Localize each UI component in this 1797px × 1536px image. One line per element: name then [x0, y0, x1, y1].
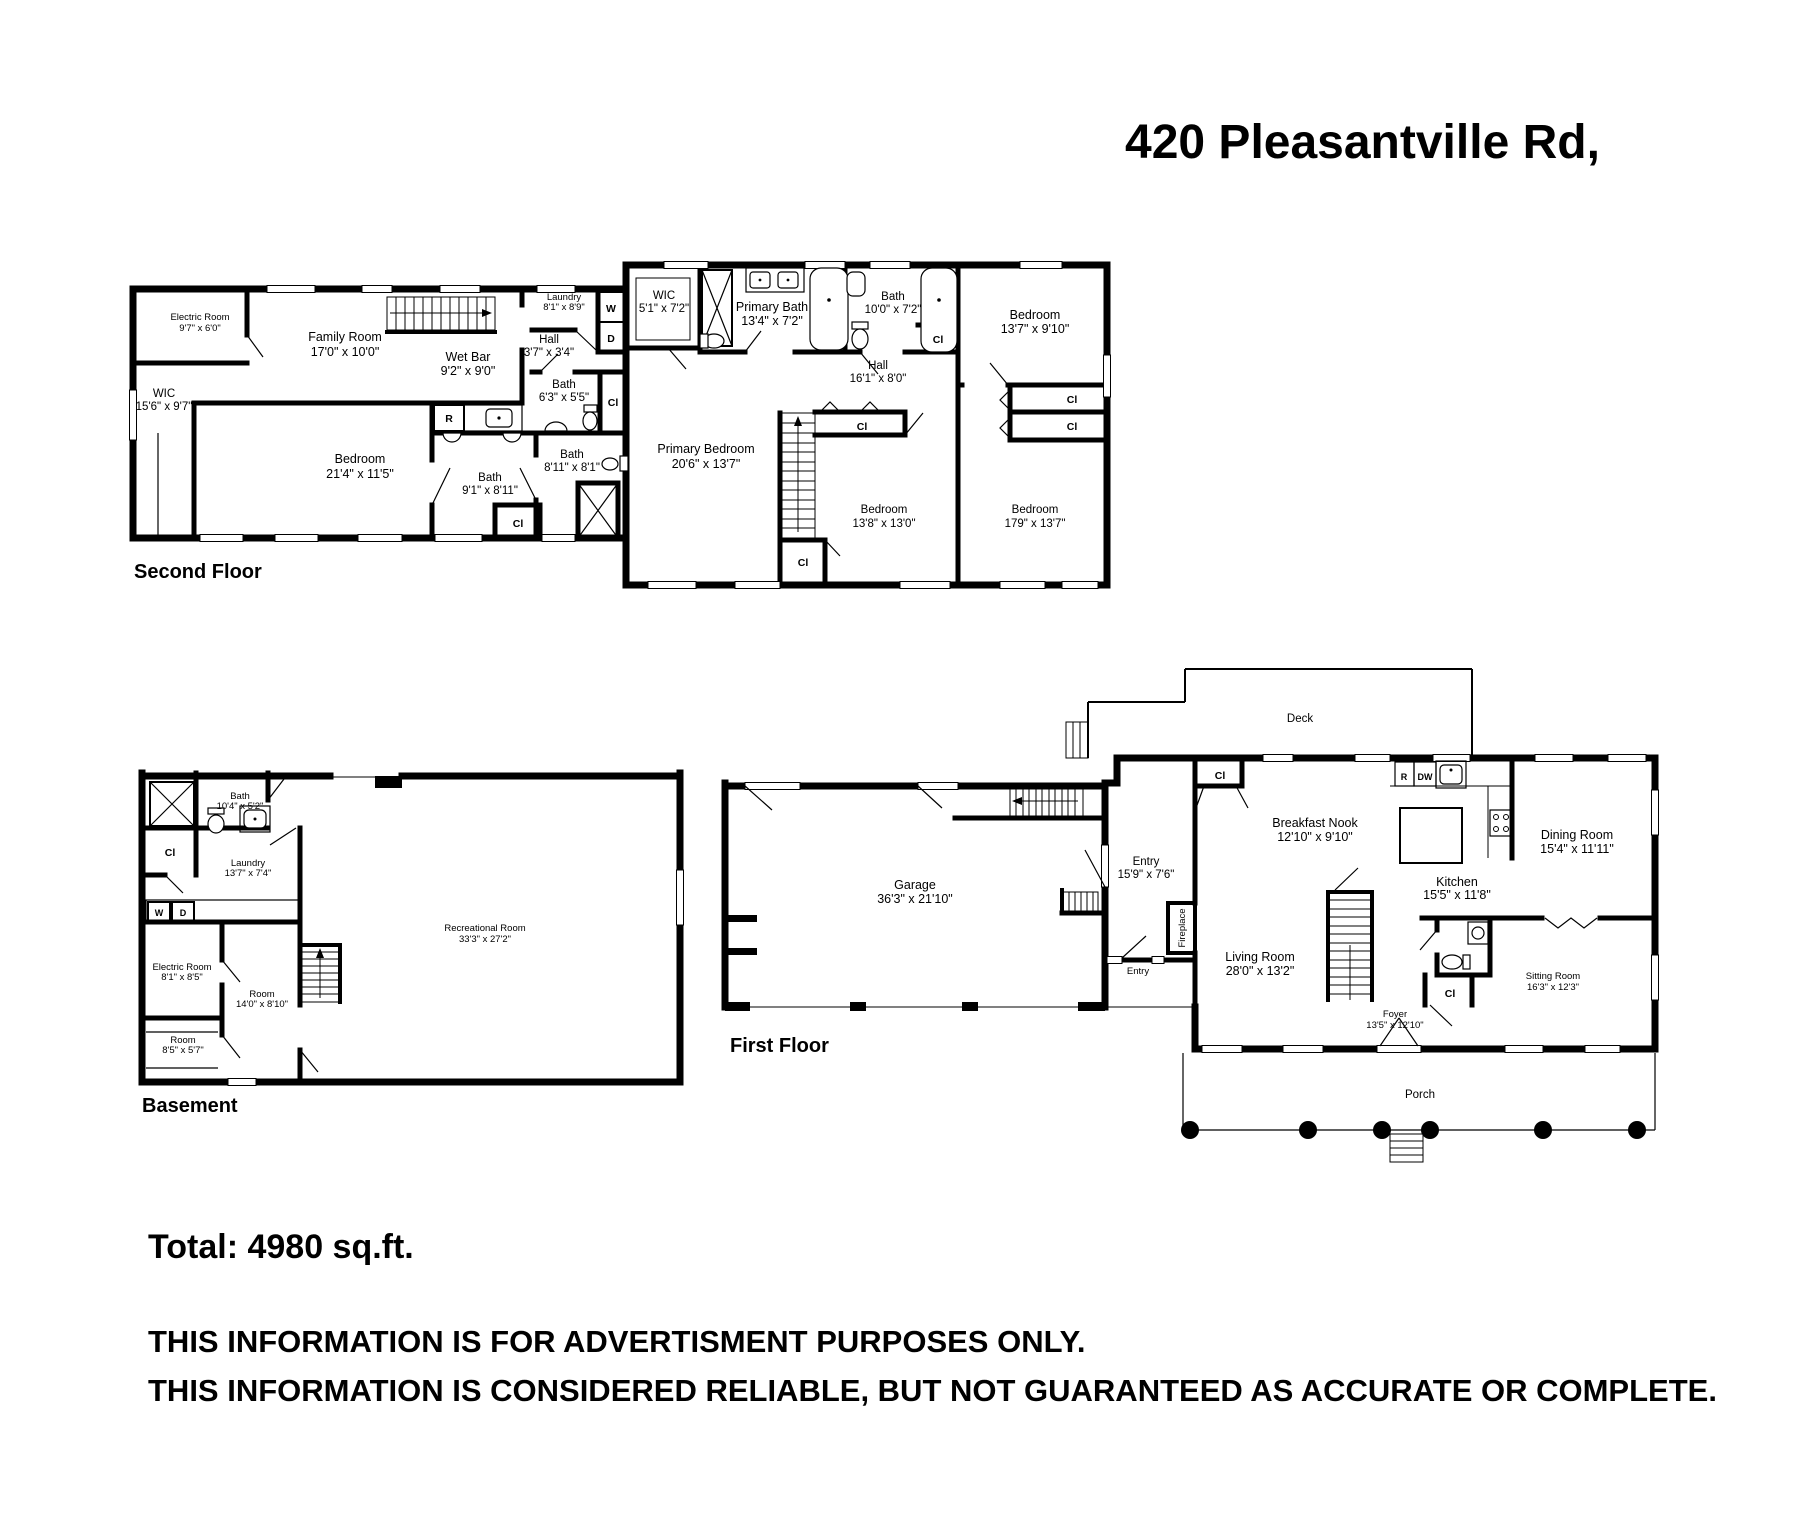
basement-title: Basement	[142, 1095, 238, 1117]
room-dims: 9'1" x 8'11"	[462, 485, 518, 497]
porch-column	[1373, 1121, 1391, 1139]
basement-windows	[228, 870, 684, 1086]
house-stairs	[1328, 892, 1372, 1000]
refrigerator-tag: R	[445, 413, 453, 425]
second-floor-stairs-main	[782, 413, 815, 538]
washer-tag: W	[606, 303, 616, 315]
closet-tag: Cl	[608, 397, 619, 409]
room-label: Primary Bedroom	[657, 442, 754, 456]
room-dims: 8'1" x 8'9"	[543, 302, 585, 313]
room-dims: 3'7" x 3'4"	[524, 347, 574, 359]
room-label: Living Room	[1225, 950, 1294, 964]
porch-column	[1534, 1121, 1552, 1139]
basement-stairs	[300, 945, 340, 1002]
garage-pillar	[1078, 1002, 1105, 1011]
basement-top-nub	[375, 776, 402, 788]
toilet-icon	[602, 458, 618, 470]
porch-label: Porch	[1405, 1089, 1435, 1101]
room-label: Breakfast Nook	[1272, 816, 1358, 830]
room-dims: 33'3" x 27'2"	[459, 934, 511, 945]
deck-label: Deck	[1287, 713, 1313, 725]
room-dims: 10'0" x 7'2"	[865, 304, 922, 316]
garage-pillar	[962, 1002, 978, 1011]
room-dims: 13'7" x 9'10"	[1001, 322, 1070, 336]
room-dims: 28'0" x 13'2"	[1226, 964, 1295, 978]
room-label: Entry	[1133, 856, 1160, 868]
closet-tag: Cl	[165, 847, 176, 859]
room-dims: 16'1" x 8'0"	[850, 373, 907, 385]
basement-plan: Bath 10'4" x 5'2" Cl Laundry 13'7" x 7'4…	[142, 773, 684, 1117]
bath-sink-icon	[503, 433, 521, 442]
second-floor-title: Second Floor	[134, 561, 262, 583]
kitchen-fixtures	[1390, 761, 1512, 969]
porch-column	[1628, 1121, 1646, 1139]
room-label: Kitchen	[1436, 875, 1478, 889]
room-label: Bath	[478, 472, 502, 484]
deck-steps	[1066, 722, 1088, 758]
closet-tag: Cl	[513, 518, 524, 530]
basement-door-swings	[146, 779, 318, 1072]
room-dims: 13'7" x 7'4"	[225, 868, 272, 879]
closet-tag: Cl	[798, 557, 809, 569]
room-label: Foyer	[1383, 1009, 1407, 1020]
room-dims: 13'8" x 13'0"	[852, 518, 915, 530]
floor-plan-sheet: 420 Pleasantville Rd, Total: 4980 sq.ft.…	[0, 0, 1797, 1536]
kitchen-island	[1400, 808, 1462, 863]
washer-tag: W	[155, 908, 164, 918]
stove-icon	[1490, 810, 1512, 836]
bath-sink-icon	[545, 422, 567, 431]
dishwasher-tag: DW	[1418, 772, 1433, 782]
wall-stub	[725, 948, 757, 955]
room-label: Bath	[560, 449, 584, 461]
sink-icon	[847, 272, 865, 296]
refrigerator-tag: R	[1401, 772, 1408, 782]
toilet-tank-icon	[584, 405, 597, 412]
room-dims: 10'4" x 5'2"	[217, 801, 264, 812]
room-dims: 8'11" x 8'1"	[544, 462, 600, 474]
toilet-icon	[583, 412, 597, 430]
room-dims: 17'0" x 10'0"	[311, 345, 380, 359]
house-interior-walls	[955, 758, 1655, 1007]
room-label: Electric Room	[170, 312, 229, 323]
first-floor-title: First Floor	[730, 1035, 829, 1057]
room-label: Bedroom	[1010, 308, 1061, 322]
room-label: Entry	[1127, 966, 1149, 977]
room-label: Dining Room	[1541, 828, 1613, 842]
closet-tag: Cl	[1067, 394, 1078, 406]
room-label: Hall	[868, 360, 888, 372]
room-label: Bath	[881, 291, 905, 303]
room-label: Bedroom	[861, 504, 908, 516]
first-floor-plan: Garage 36'3" x 21'10" Entry 15'9" x 7'6"…	[725, 669, 1659, 1162]
toilet-icon	[1442, 955, 1462, 969]
porch-column	[1421, 1121, 1439, 1139]
room-dims: 13'4" x 7'2"	[741, 314, 803, 328]
closet-cross	[578, 483, 618, 538]
room-label: Hall	[539, 334, 559, 346]
room-dims: 6'3" x 5'5"	[539, 392, 589, 404]
disclaimer-line-1: THIS INFORMATION IS FOR ADVERTISMENT PUR…	[148, 1324, 1086, 1359]
porch-column	[1299, 1121, 1317, 1139]
toilet-tank-icon	[620, 456, 628, 471]
room-dims: 15'9" x 7'6"	[1118, 869, 1175, 881]
room-dims: 8'5" x 5'7"	[162, 1045, 204, 1056]
room-dims: 9'7" x 6'0"	[179, 323, 221, 334]
room-label: Bedroom	[335, 452, 386, 466]
room-label: Sitting Room	[1526, 971, 1580, 982]
room-dims: 21'4" x 11'5"	[326, 467, 394, 481]
room-dims: 15'6" x 9'7"	[136, 401, 193, 413]
room-dims: 16'3" x 12'3"	[1527, 982, 1579, 993]
room-dims: 36'3" x 21'10"	[877, 892, 953, 906]
garage-stairs	[1010, 786, 1098, 913]
room-dims: 20'6" x 13'7"	[672, 457, 741, 471]
room-label: WIC	[153, 388, 175, 400]
closet-tag: Cl	[1215, 770, 1226, 782]
room-label: Bedroom	[1012, 504, 1059, 516]
deck-outline	[1066, 669, 1472, 758]
room-dims: 5'1" x 7'2"	[639, 303, 689, 315]
first-floor-labels: Garage 36'3" x 21'10" Entry 15'9" x 7'6"…	[730, 713, 1614, 1101]
dryer-tag: D	[607, 333, 615, 345]
toilet-tank-icon	[700, 334, 708, 348]
room-label: WIC	[653, 290, 675, 302]
kitchen-sink-icon	[1440, 765, 1462, 784]
bathtub-icon	[810, 268, 848, 350]
room-dims: 13'5" x 12'10"	[1366, 1020, 1423, 1031]
closet-tag: Cl	[1445, 988, 1456, 1000]
dryer-tag: D	[180, 908, 187, 918]
garage-pillar	[725, 1002, 750, 1011]
room-label: Primary Bath	[736, 300, 808, 314]
closet-tag: Cl	[933, 334, 944, 346]
toilet-icon	[208, 815, 224, 833]
second-floor-stairs-upper	[387, 297, 495, 332]
page-title: 420 Pleasantville Rd,	[1125, 116, 1600, 169]
room-label: Bath	[552, 379, 576, 391]
porch-column	[1181, 1121, 1199, 1139]
room-label: Wet Bar	[446, 350, 491, 364]
wall-stub	[725, 915, 757, 922]
room-label: Garage	[894, 878, 936, 892]
room-dims: 15'4" x 11'11"	[1540, 842, 1614, 856]
room-dims: 15'5" x 11'8"	[1423, 888, 1491, 902]
closet-tag: Cl	[857, 421, 868, 433]
toilet-icon	[852, 329, 868, 349]
floor-plan-drawing: 420 Pleasantville Rd, Total: 4980 sq.ft.…	[0, 0, 1797, 1536]
powder-sink-icon	[1472, 927, 1484, 939]
room-dims: 8'1" x 8'5"	[161, 972, 203, 983]
toilet-tank-icon	[852, 322, 868, 329]
toilet-tank-icon	[1463, 955, 1470, 969]
garage-pillar	[850, 1002, 866, 1011]
room-dims: 14'0" x 8'10"	[236, 999, 288, 1010]
bath-sink-icon	[443, 433, 461, 442]
second-floor-plan: Electric Room 9'7" x 6'0" Family Room 17…	[130, 262, 1111, 589]
porch-outline	[1181, 1053, 1655, 1162]
fireplace-label: Fireplace	[1177, 908, 1188, 947]
room-label: Family Room	[308, 330, 382, 344]
total-area-text: Total: 4980 sq.ft.	[148, 1228, 414, 1266]
closet-tag: Cl	[1067, 421, 1078, 433]
room-dims: 12'10" x 9'10"	[1277, 830, 1353, 844]
room-dims: 179" x 13'7"	[1005, 518, 1066, 530]
disclaimer-line-2: THIS INFORMATION IS CONSIDERED RELIABLE,…	[148, 1373, 1717, 1408]
room-label: Recreational Room	[444, 923, 525, 934]
room-dims: 9'2" x 9'0"	[441, 364, 496, 378]
